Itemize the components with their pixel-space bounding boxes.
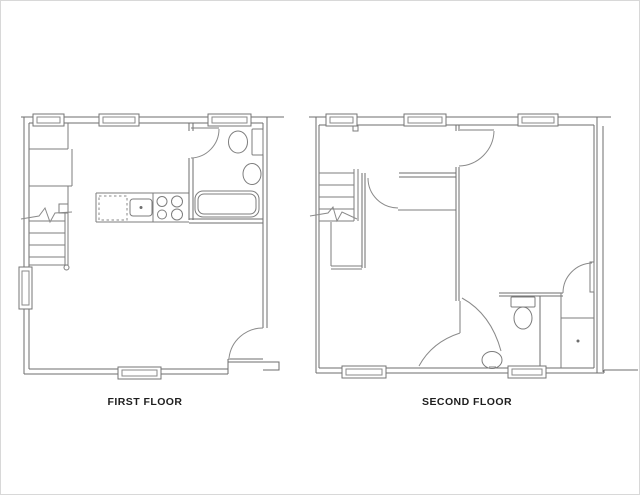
bathroom-door-swing [462, 298, 501, 351]
first-floor-label: FIRST FLOOR [108, 396, 183, 408]
kitchen-counter [96, 193, 189, 222]
bathroom-sink-icon [243, 164, 261, 185]
kitchen-sink-icon [130, 199, 152, 216]
dishwasher-icon [99, 196, 127, 220]
adjacent-structure-line [604, 370, 638, 373]
bathroom-door-swing [191, 129, 219, 158]
bedroom2-door-swing [419, 333, 460, 366]
window-icon [208, 114, 251, 126]
stove-icon [157, 196, 183, 220]
staircase-icon [310, 125, 365, 269]
door-knob-dot [577, 340, 580, 343]
second-floor-windows [326, 114, 558, 378]
first-floor-bathroom [189, 123, 263, 223]
hall-door-swing [368, 178, 398, 208]
handrail-end [64, 265, 69, 270]
entry-door-swing [229, 328, 263, 358]
window-icon [518, 114, 558, 126]
floor-plan-drawing: FIRST FLOOR [1, 1, 640, 495]
closet-door-panel [590, 262, 594, 292]
first-floor-windows [19, 114, 251, 379]
second-floor-plan: SECOND FLOOR [309, 114, 638, 408]
second-floor-partitions [398, 125, 460, 333]
window-icon [118, 367, 161, 379]
floor-plan-sheet: FIRST FLOOR [0, 0, 640, 495]
newel-post [59, 204, 68, 213]
first-floor-plan: FIRST FLOOR [19, 114, 284, 408]
second-floor-bathroom [482, 262, 594, 369]
window-icon [342, 366, 386, 378]
second-floor-doors [368, 130, 501, 366]
toilet-icon [511, 297, 535, 329]
closet-door-swing [563, 263, 592, 293]
window-icon [19, 267, 32, 309]
toilet-icon [229, 129, 264, 155]
bathroom-sink-icon [482, 352, 502, 369]
second-floor-walls [309, 117, 638, 373]
bathtub-icon [195, 191, 259, 217]
window-icon [33, 114, 64, 126]
window-icon [404, 114, 446, 126]
window-icon [326, 114, 357, 126]
second-floor-label: SECOND FLOOR [422, 396, 512, 408]
window-icon [508, 366, 546, 378]
walk-in-closet [561, 262, 594, 368]
window-icon [99, 114, 139, 126]
bedroom1-door-swing [459, 131, 494, 166]
